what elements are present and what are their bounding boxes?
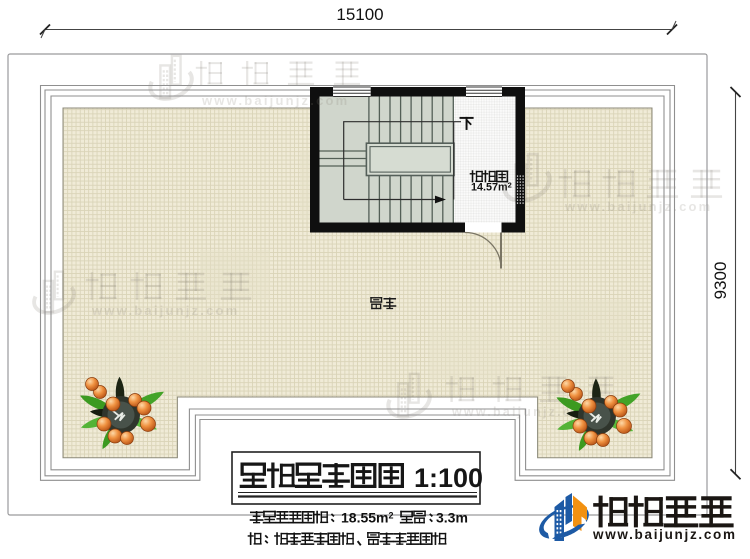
svg-text:15100: 15100 [336, 5, 383, 24]
svg-text:www.baijunjz.com: www.baijunjz.com [564, 199, 712, 214]
svg-text:www.baijunjz.com: www.baijunjz.com [91, 303, 239, 318]
svg-text:www.baijunjz.com: www.baijunjz.com [201, 93, 349, 108]
svg-text:9300: 9300 [711, 262, 730, 300]
svg-text:1:100: 1:100 [414, 463, 483, 493]
svg-text:www.baijunjz.com: www.baijunjz.com [592, 527, 737, 542]
svg-text:3.3m: 3.3m [436, 510, 468, 526]
svg-text:18.55m2: 18.55m2 [341, 510, 394, 526]
